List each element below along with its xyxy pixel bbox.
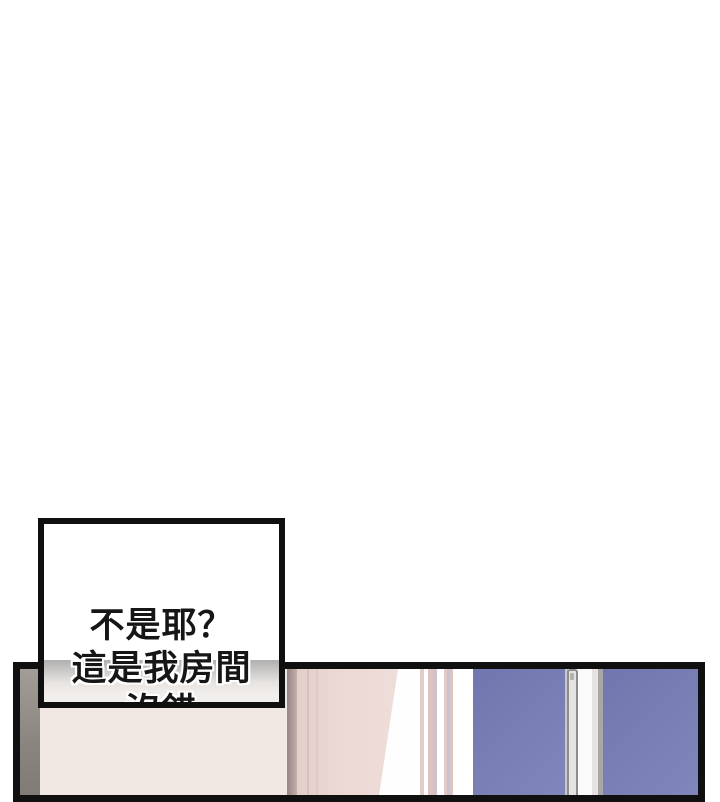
speech-text: 不是耶？ 這是我房間 沒錯 <box>44 604 279 708</box>
speech-bubble: 不是耶？ 這是我房間 沒錯 <box>38 518 285 708</box>
speech-text-line: 這是我房間 <box>44 647 279 690</box>
speech-text-line: 不是耶？ <box>44 604 279 647</box>
comic-page: { "page": { "type": "comic-page", "backg… <box>0 0 720 700</box>
speech-text-line: 沒錯 <box>44 690 279 708</box>
window-pane-left <box>473 669 565 802</box>
left-wall-shadow <box>20 669 40 802</box>
window-handle <box>567 669 578 802</box>
wall-seam-line <box>307 669 309 802</box>
wall-shadow-strip <box>287 669 297 802</box>
window-handle-notch <box>570 673 574 680</box>
curtain-stripes <box>415 669 473 802</box>
window-pane-right <box>603 669 698 802</box>
wall-seam-line <box>316 669 318 802</box>
